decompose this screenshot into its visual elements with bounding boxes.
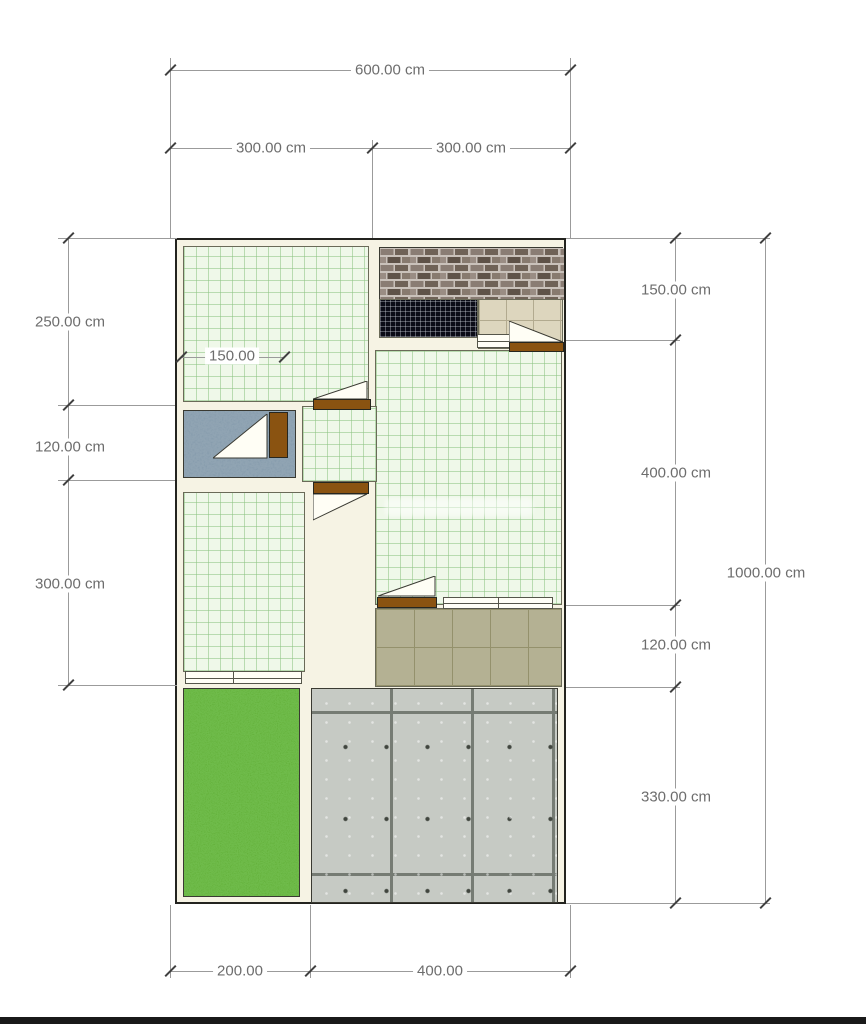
window-mid-line bbox=[478, 341, 509, 342]
front-window bbox=[443, 597, 553, 609]
ext-line bbox=[566, 340, 680, 341]
dim-label-interior: 150.00 bbox=[205, 348, 259, 365]
ext-line bbox=[372, 140, 373, 238]
brick-texture bbox=[380, 248, 564, 300]
service-window bbox=[477, 334, 510, 348]
main-hall bbox=[375, 350, 562, 605]
dim-label-right-top: 150.00 cm bbox=[637, 282, 715, 299]
dim-label-bottom-right: 400.00 bbox=[413, 963, 467, 980]
ext-line bbox=[170, 905, 171, 978]
watermark bbox=[385, 498, 533, 516]
ext-line bbox=[58, 238, 177, 239]
dim-label-left-lower: 300.00 cm bbox=[31, 576, 109, 593]
garden-grass bbox=[183, 688, 300, 897]
dim-label-top-left: 300.00 cm bbox=[232, 140, 310, 157]
kitchen-counter-black-tile bbox=[379, 299, 478, 338]
front-door-swing bbox=[378, 576, 436, 597]
dim-label-top-right: 300.00 cm bbox=[432, 140, 510, 157]
bottom-room-door-swing bbox=[313, 494, 368, 521]
ext-line bbox=[58, 685, 177, 686]
carport-concrete bbox=[311, 688, 558, 903]
bottom-room-window bbox=[185, 671, 302, 684]
terrace bbox=[375, 608, 562, 687]
dim-label-right-total: 1000.00 cm bbox=[723, 565, 809, 582]
service-door-swing bbox=[509, 321, 564, 343]
ext-line bbox=[310, 905, 311, 978]
floor-plan-canvas: 600.00 cm 300.00 cm 300.00 cm 250.00 cm … bbox=[0, 0, 866, 1024]
ext-line bbox=[58, 480, 175, 481]
window-divider bbox=[498, 598, 499, 608]
dim-line-left bbox=[68, 238, 69, 685]
corridor bbox=[302, 406, 377, 482]
ext-line bbox=[570, 905, 571, 978]
dim-label-top-total: 600.00 cm bbox=[351, 62, 429, 79]
ext-line bbox=[566, 605, 680, 606]
dim-label-right-lower: 120.00 cm bbox=[637, 637, 715, 654]
bathroom-door-swing bbox=[213, 414, 268, 459]
bathroom-door-leaf bbox=[269, 412, 288, 458]
top-room-door-swing bbox=[313, 381, 368, 400]
bottom-room-door-leaf bbox=[313, 482, 369, 494]
room-top-left bbox=[183, 246, 369, 402]
ext-line bbox=[58, 405, 175, 406]
dim-label-right-upper: 400.00 cm bbox=[637, 465, 715, 482]
front-door-leaf bbox=[377, 597, 437, 608]
ext-line bbox=[566, 903, 770, 904]
room-bottom-left bbox=[183, 492, 305, 672]
grass-texture bbox=[184, 689, 299, 896]
bottom-border-bar bbox=[0, 1017, 866, 1024]
ext-line bbox=[566, 687, 680, 688]
dim-label-left-upper: 250.00 cm bbox=[31, 314, 109, 331]
service-door-leaf bbox=[509, 342, 564, 352]
window-divider bbox=[233, 672, 234, 683]
top-room-door-leaf bbox=[313, 399, 371, 410]
brick-band bbox=[379, 247, 563, 299]
dim-label-bottom-left: 200.00 bbox=[213, 963, 267, 980]
dim-label-left-middle: 120.00 cm bbox=[31, 439, 109, 456]
window-mid-line bbox=[186, 678, 301, 679]
ext-line bbox=[566, 238, 770, 239]
dim-label-right-bottom: 330.00 cm bbox=[637, 789, 715, 806]
